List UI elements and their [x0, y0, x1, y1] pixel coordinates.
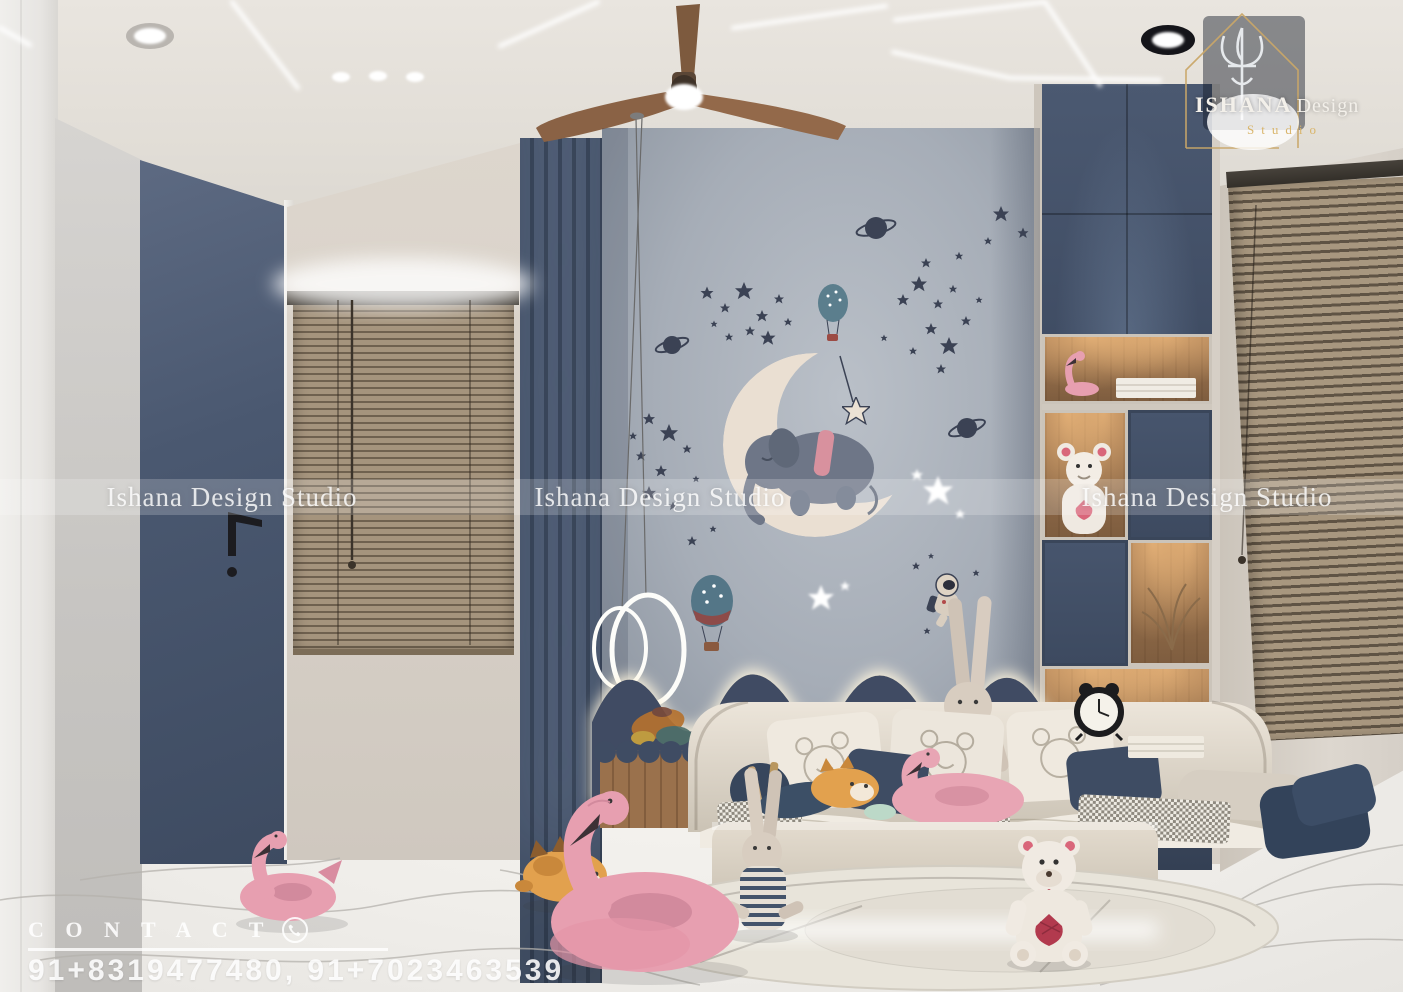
watermark: Ishana Design Studio — [1082, 482, 1333, 513]
contact-label: C O N T A C T — [28, 917, 271, 943]
watermark: Ishana Design Studio — [107, 482, 358, 513]
logo-word-ishana: ISHANA — [1195, 92, 1293, 117]
led-strip-lights — [0, 2, 1160, 88]
contact-block: C O N T A C T 91+8319477480, 91+70234635… — [28, 916, 564, 988]
flamingo-float-small — [240, 831, 342, 921]
shelf-items — [1057, 351, 1204, 758]
contact-underline — [28, 948, 388, 951]
flamingo-toy — [1065, 351, 1099, 396]
ceiling-fan — [536, 4, 846, 142]
blind-cords — [338, 300, 470, 645]
watermark: Ishana Design Studio — [535, 482, 786, 513]
logo-title: ISHANA Design — [1195, 92, 1391, 118]
contact-numbers: 91+8319477480, 91+7023463539 — [28, 954, 564, 988]
book-stack — [1116, 378, 1196, 398]
book-stack — [1128, 736, 1204, 758]
studio-logo: ISHANA Design Studio — [1183, 4, 1393, 154]
logo-word-design: Design — [1297, 95, 1360, 117]
window-cove-glow — [273, 258, 533, 310]
door-handle — [227, 512, 262, 577]
logo-word-studio: Studio — [1247, 122, 1323, 138]
dried-plant — [1142, 584, 1200, 650]
kids-bedroom-render: Ishana Design Studio Ishana Design Studi… — [0, 0, 1403, 992]
phone-icon — [281, 916, 309, 944]
